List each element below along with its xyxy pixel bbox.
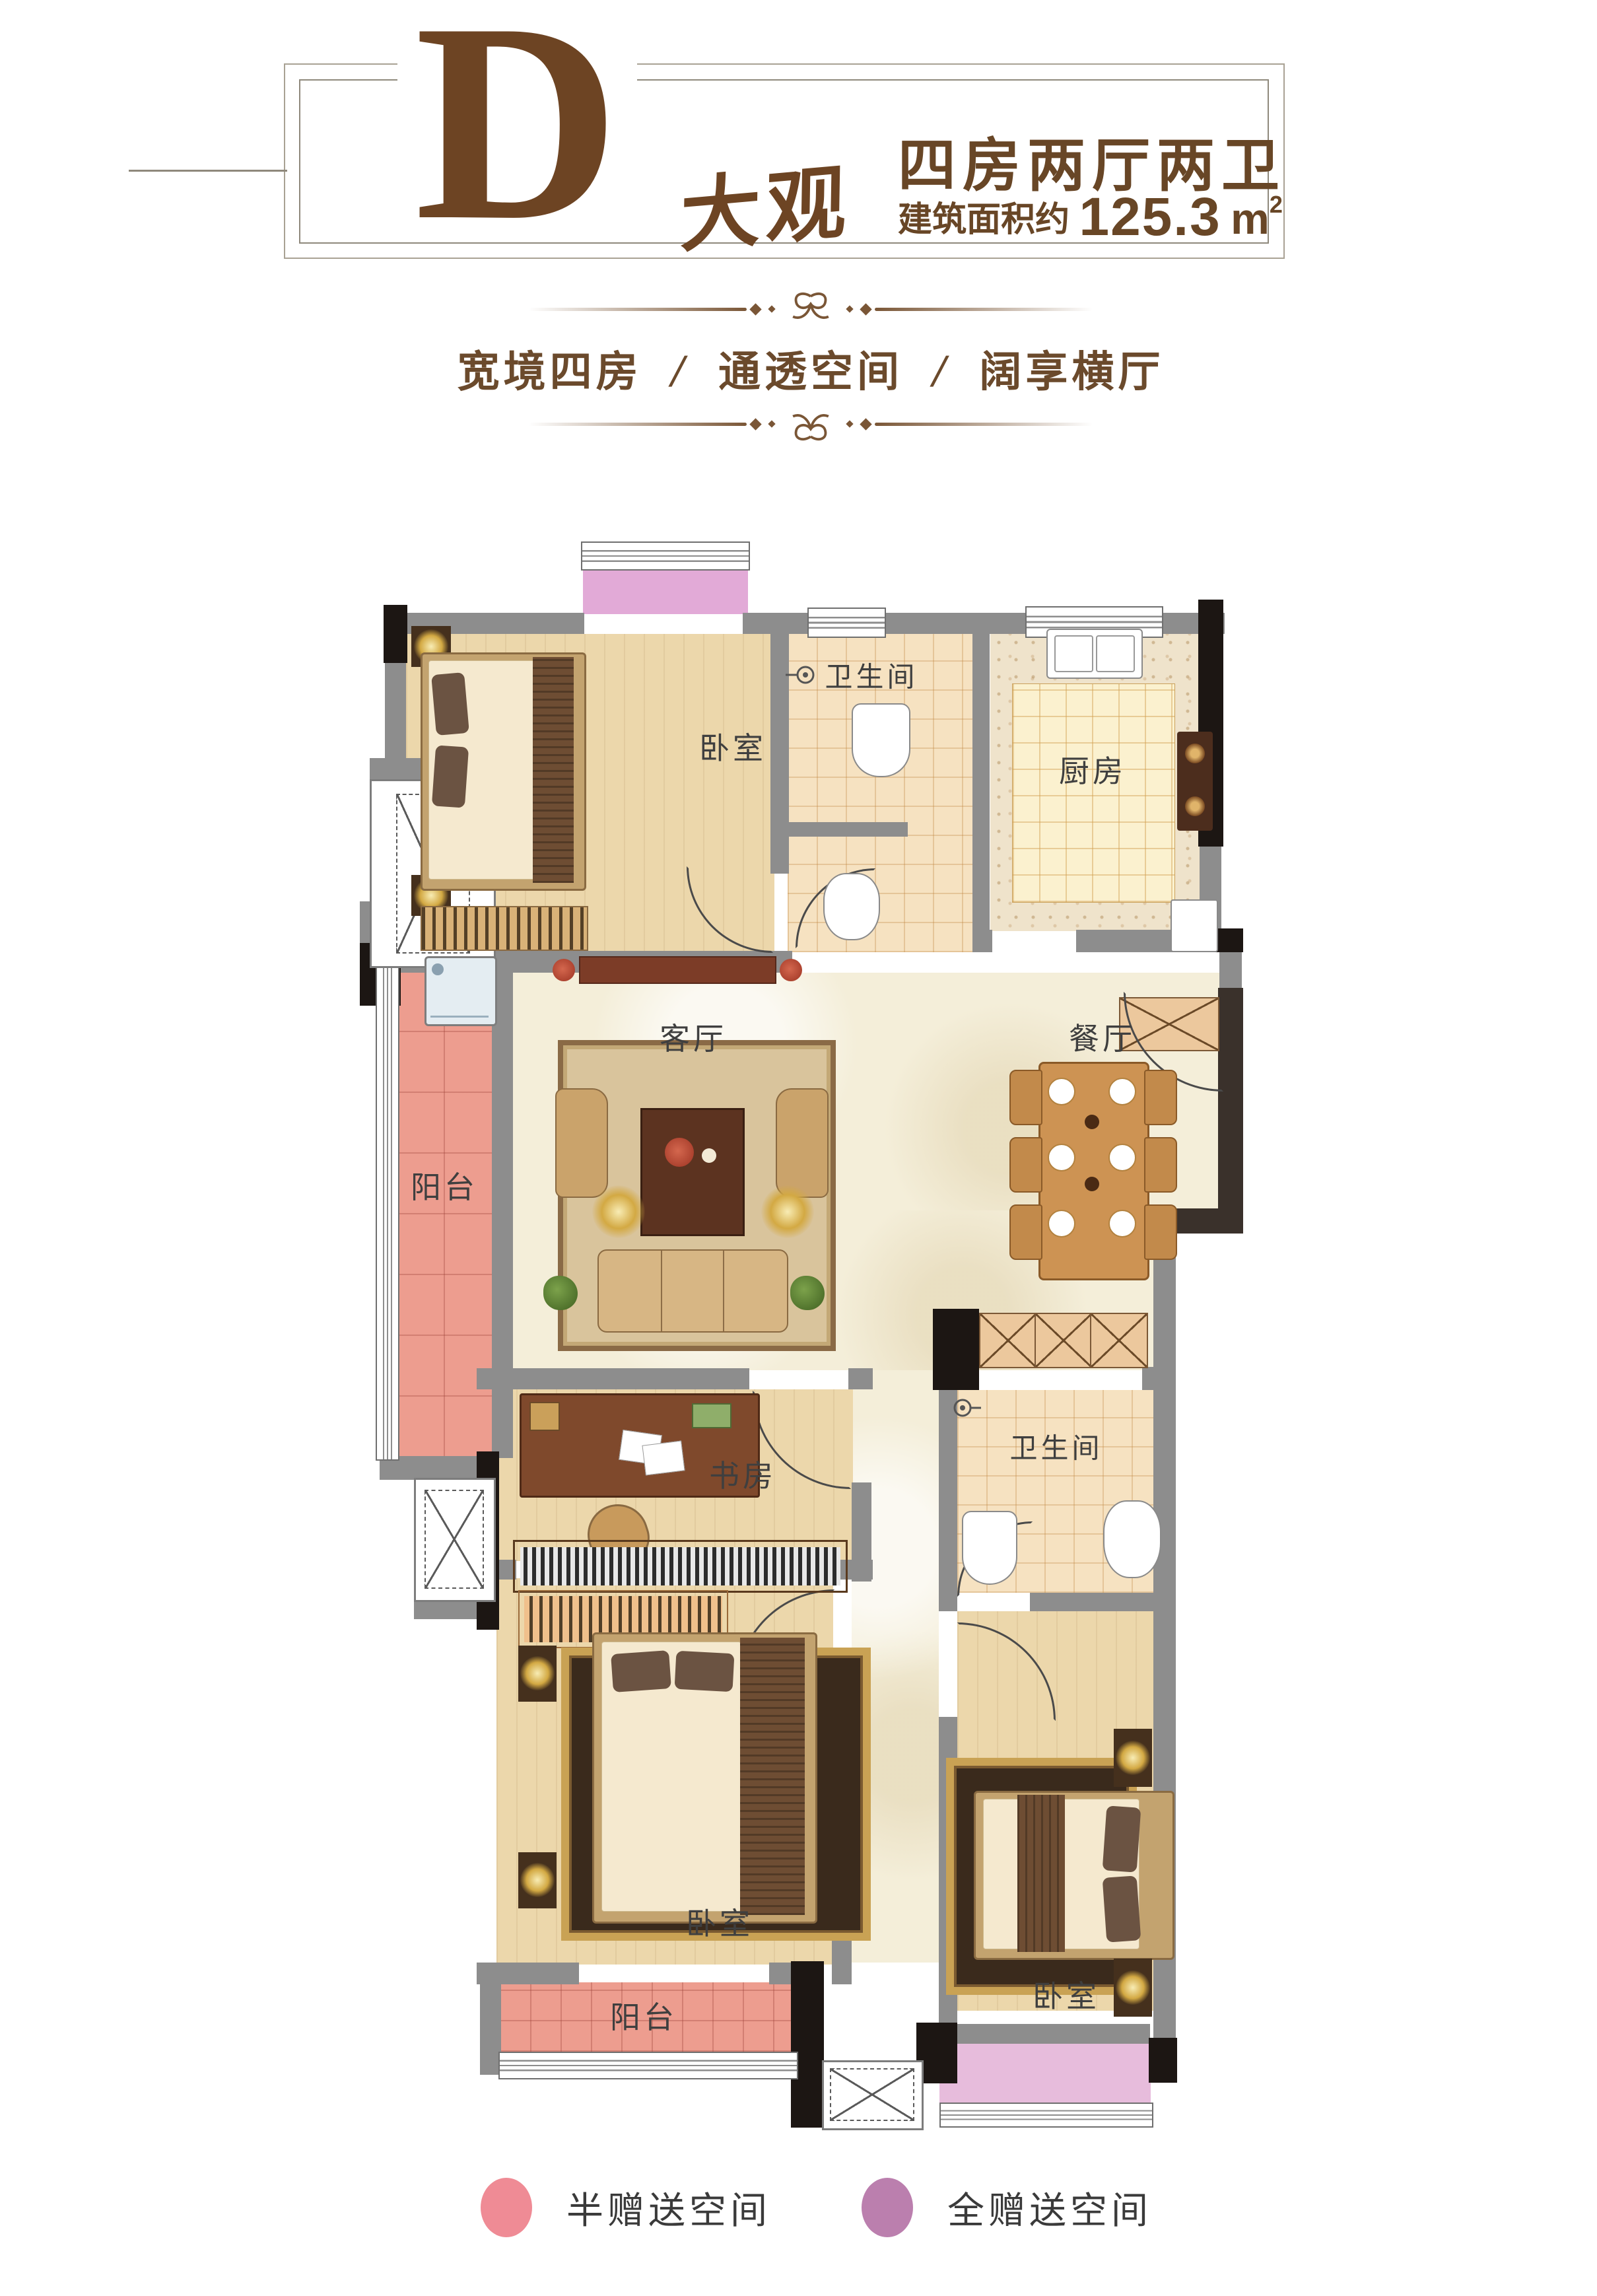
- wall: [848, 1368, 873, 1389]
- legend-item-full-gift: 全赠送空间: [862, 2178, 1152, 2237]
- wall: [1030, 1593, 1155, 1611]
- unit-letter: D: [397, 12, 637, 233]
- dining-chair: [1144, 1070, 1177, 1125]
- gift-space-bottom: [939, 2039, 1151, 2103]
- plate: [1048, 1144, 1075, 1171]
- unit-area: 建筑面积约 125.3 m2: [898, 186, 1283, 248]
- area-value: 125.3: [1079, 187, 1221, 247]
- tagline-separator: /: [928, 347, 955, 396]
- divider-line-right: [875, 308, 1093, 311]
- coffee-table: [640, 1108, 745, 1236]
- shower-icon: [951, 1395, 981, 1421]
- stove: [1177, 732, 1213, 831]
- plant: [543, 1276, 578, 1310]
- plate: [1048, 1210, 1075, 1237]
- room-label-bedroom-right: 卧室: [1033, 1972, 1100, 2016]
- kitchen-sink-basin: [1096, 635, 1135, 672]
- area-unit: m: [1231, 194, 1270, 243]
- toilet: [852, 703, 910, 777]
- area-superscript: 2: [1270, 191, 1283, 218]
- lamp: [1114, 1959, 1152, 2017]
- flower-pot: [780, 959, 802, 981]
- wall: [957, 2024, 1150, 2044]
- dish: [1085, 1115, 1099, 1129]
- shower-icon: [786, 662, 816, 688]
- bed-pillow: [675, 1651, 735, 1692]
- ornament-divider-bottom: [335, 404, 1286, 444]
- bed-pillow: [1103, 1805, 1141, 1872]
- tagline: 宽境四房 / 通透空间 / 阔享横厅: [335, 338, 1286, 399]
- kitchen-island-tile: [1012, 683, 1175, 903]
- room-label-bath-top: 卫生间: [825, 655, 918, 695]
- wall-black: [933, 1309, 979, 1390]
- tagline-part: 通透空间: [718, 348, 903, 396]
- legend-swatch-pink: [481, 2178, 532, 2237]
- ac-shaft-x: [425, 1490, 484, 1589]
- divider-diamond: [749, 303, 761, 315]
- armchair: [776, 1088, 829, 1198]
- bed-blanket: [1017, 1795, 1065, 1952]
- floor-plan: 卧室 卫生间 厨房 客厅 餐厅 阳台 书房 卫生间 卧室 卧室 阳台: [360, 541, 1304, 2146]
- ornament-divider-top: [335, 289, 1286, 329]
- gift-space-top: [583, 567, 748, 614]
- kitchen-sink-basin: [1054, 635, 1093, 672]
- tv-cabinet: [579, 956, 776, 984]
- title-frame-line: [129, 170, 287, 172]
- fridge: [1171, 899, 1218, 952]
- window-vertical: [376, 911, 399, 1461]
- flower-pot: [553, 959, 575, 981]
- window: [807, 608, 886, 638]
- room-label-kitchen: 厨房: [1059, 748, 1126, 791]
- bed-pillow: [431, 672, 469, 736]
- window: [581, 541, 750, 571]
- tagline-part: 阔享横厅: [979, 348, 1164, 396]
- bed-blanket: [533, 657, 574, 883]
- sink: [1103, 1500, 1161, 1578]
- armchair: [555, 1088, 608, 1198]
- divider-line-left: [529, 423, 747, 426]
- divider-diamond: [860, 418, 871, 430]
- wardrobe-cabinet: [979, 1313, 1037, 1368]
- room-label-balcony-left: 阳台: [411, 1164, 478, 1207]
- bed-pillow: [611, 1650, 671, 1692]
- dining-chair: [1144, 1137, 1177, 1193]
- room-label-dining: 餐厅: [1069, 1015, 1136, 1059]
- wardrobe-cabinet: [1035, 1313, 1093, 1368]
- sofa: [597, 1249, 788, 1333]
- dish: [1085, 1177, 1099, 1191]
- legend-label: 半赠送空间: [566, 2181, 771, 2235]
- room-label-bath-mid: 卫生间: [1009, 1426, 1103, 1467]
- dining-chair: [1009, 1204, 1042, 1260]
- wardrobe-cabinet: [1090, 1313, 1148, 1368]
- tagline-part: 宽境四房: [458, 348, 642, 396]
- window: [939, 2103, 1153, 2128]
- divider-diamond-small: [768, 305, 775, 312]
- tagline-separator: /: [666, 347, 694, 396]
- plant: [790, 1276, 825, 1310]
- divider-line-left: [529, 308, 747, 311]
- wall-black: [384, 605, 407, 663]
- flourish-icon: [779, 404, 842, 444]
- divider-diamond-small: [846, 420, 853, 427]
- legend-item-half-gift: 半赠送空间: [481, 2178, 771, 2237]
- bed-pillow: [1103, 1875, 1141, 1942]
- bed-pillow: [432, 745, 469, 808]
- room-label-bedroom-top: 卧室: [699, 724, 766, 768]
- bench: [421, 906, 588, 951]
- flourish-icon: [779, 289, 842, 329]
- lamp: [518, 1646, 557, 1702]
- divider-line-right: [875, 423, 1093, 426]
- divider-diamond: [749, 418, 761, 430]
- washing-machine: [425, 956, 497, 1026]
- legend-label: 全赠送空间: [947, 2181, 1152, 2235]
- dining-chair: [1009, 1137, 1042, 1193]
- room-label-bedroom-left: 卧室: [686, 1900, 753, 1943]
- floorplan-page: D 大观 四房两厅两卫 建筑面积约 125.3 m2 宽境四房 / 通透空间 /…: [0, 0, 1597, 2296]
- plate: [1108, 1078, 1136, 1105]
- legend-swatch-purple: [862, 2178, 913, 2237]
- lamp: [1114, 1729, 1152, 1787]
- divider-diamond: [860, 303, 871, 315]
- floor-lamp-glow: [592, 1185, 645, 1238]
- wall: [972, 634, 990, 952]
- dining-chair: [1144, 1204, 1177, 1260]
- wall: [939, 1390, 957, 1611]
- lamp: [518, 1852, 557, 1908]
- wall-black: [791, 1961, 824, 2128]
- dining-chair: [1009, 1070, 1042, 1125]
- unit-letter-suffix: 大观: [679, 136, 852, 269]
- wall: [789, 822, 908, 837]
- bed-blanket: [740, 1638, 805, 1915]
- room-label-study: 书房: [709, 1452, 776, 1496]
- sink: [823, 873, 880, 940]
- wall-black: [1149, 2038, 1177, 2083]
- area-label: 建筑面积约: [898, 201, 1070, 239]
- plate: [1048, 1078, 1075, 1105]
- plate: [1108, 1144, 1136, 1171]
- wall: [477, 1368, 749, 1389]
- plate: [1108, 1210, 1136, 1237]
- divider-diamond-small: [846, 305, 853, 312]
- toilet: [962, 1511, 1017, 1585]
- room-label-balcony-bottom: 阳台: [610, 1994, 677, 2037]
- floor-lamp-glow: [761, 1185, 814, 1238]
- divider-diamond-small: [768, 420, 775, 427]
- room-label-living: 客厅: [660, 1015, 727, 1059]
- ac-shaft-x: [830, 2068, 914, 2121]
- bookshelf: [513, 1540, 848, 1593]
- window: [498, 2052, 798, 2079]
- wall: [972, 930, 992, 952]
